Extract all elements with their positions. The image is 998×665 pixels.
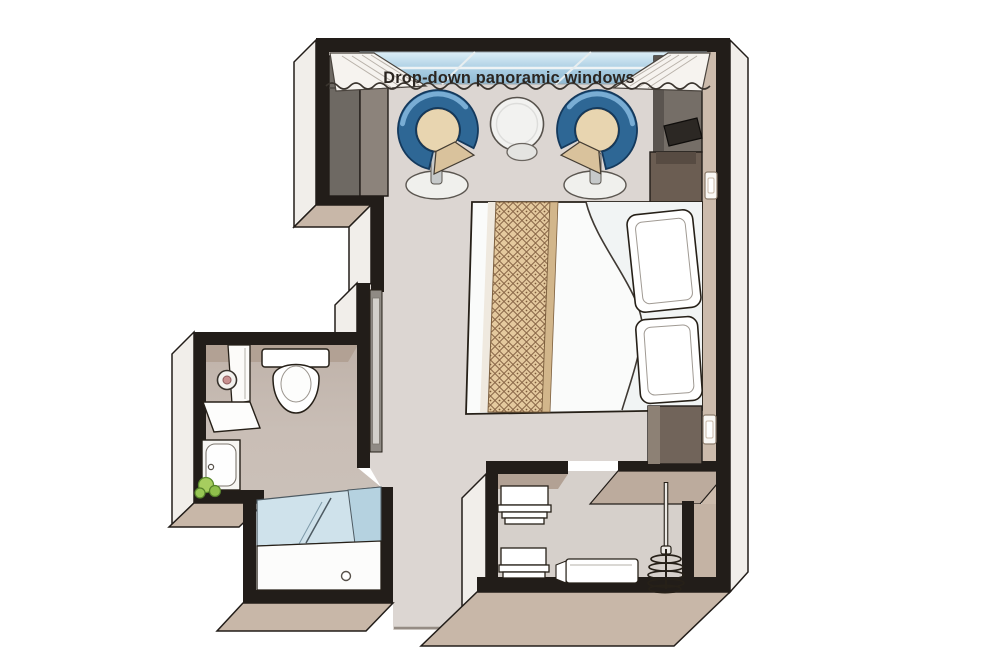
left-wall-face — [294, 40, 316, 227]
wall-left-upper — [316, 38, 329, 205]
table-top — [491, 98, 544, 151]
wall-shower-left — [243, 493, 256, 603]
wall-bathroom-top — [198, 332, 364, 345]
nightstand-top — [650, 152, 702, 208]
bed-runner — [488, 202, 550, 412]
bathroom-left-wall-face — [172, 332, 194, 525]
table-base — [507, 144, 537, 161]
magnifying-mirror — [218, 371, 237, 390]
wall-bathroom-bottom — [243, 590, 393, 603]
wall-right — [716, 38, 730, 592]
double-bed — [466, 202, 703, 414]
wall-top — [316, 38, 728, 52]
light-switch-bottom — [703, 415, 716, 444]
safe-drawer-body — [566, 559, 638, 583]
nightstand-bottom-side — [648, 406, 660, 464]
nightstand-bottom — [648, 406, 702, 464]
shelf-stack-bottom — [499, 548, 549, 578]
floor-plan-svg: Drop-down panoramic windows — [0, 0, 998, 665]
wall-closet-top-left — [486, 461, 568, 474]
light-switch-top — [705, 172, 717, 199]
wall-bathroom-right — [381, 487, 393, 603]
shower-drain — [342, 572, 351, 581]
pillow-top — [626, 209, 702, 313]
bathroom-bottom-face — [217, 603, 393, 631]
wall-closet-left — [486, 461, 498, 592]
cabin-floor-plan: Drop-down panoramic windows — [0, 0, 998, 665]
magnifying-mirror-center — [223, 376, 231, 384]
shower — [257, 487, 381, 590]
window-label: Drop-down panoramic windows — [383, 69, 634, 87]
shower-tray — [257, 541, 381, 590]
pillow-bottom — [635, 316, 703, 404]
light-switch-top-button — [708, 178, 714, 193]
closet-right-cavity — [694, 504, 716, 577]
light-switch-bottom-button — [706, 421, 713, 438]
vanity-knob — [208, 464, 213, 469]
wall-mirror-glass — [373, 298, 380, 444]
safe-drawer-tab — [556, 561, 566, 583]
nightstand-top-step — [656, 152, 696, 164]
wall-corridor-lower — [357, 283, 370, 468]
shelf-stack-top — [498, 486, 551, 524]
armchair-left — [398, 90, 478, 199]
armchair-right — [557, 90, 637, 199]
right-wall-face — [730, 40, 748, 592]
toilet-seat — [281, 366, 311, 402]
wall-corridor-upper — [371, 192, 384, 292]
safe-drawer — [556, 559, 638, 583]
wall-mirror — [370, 290, 382, 452]
